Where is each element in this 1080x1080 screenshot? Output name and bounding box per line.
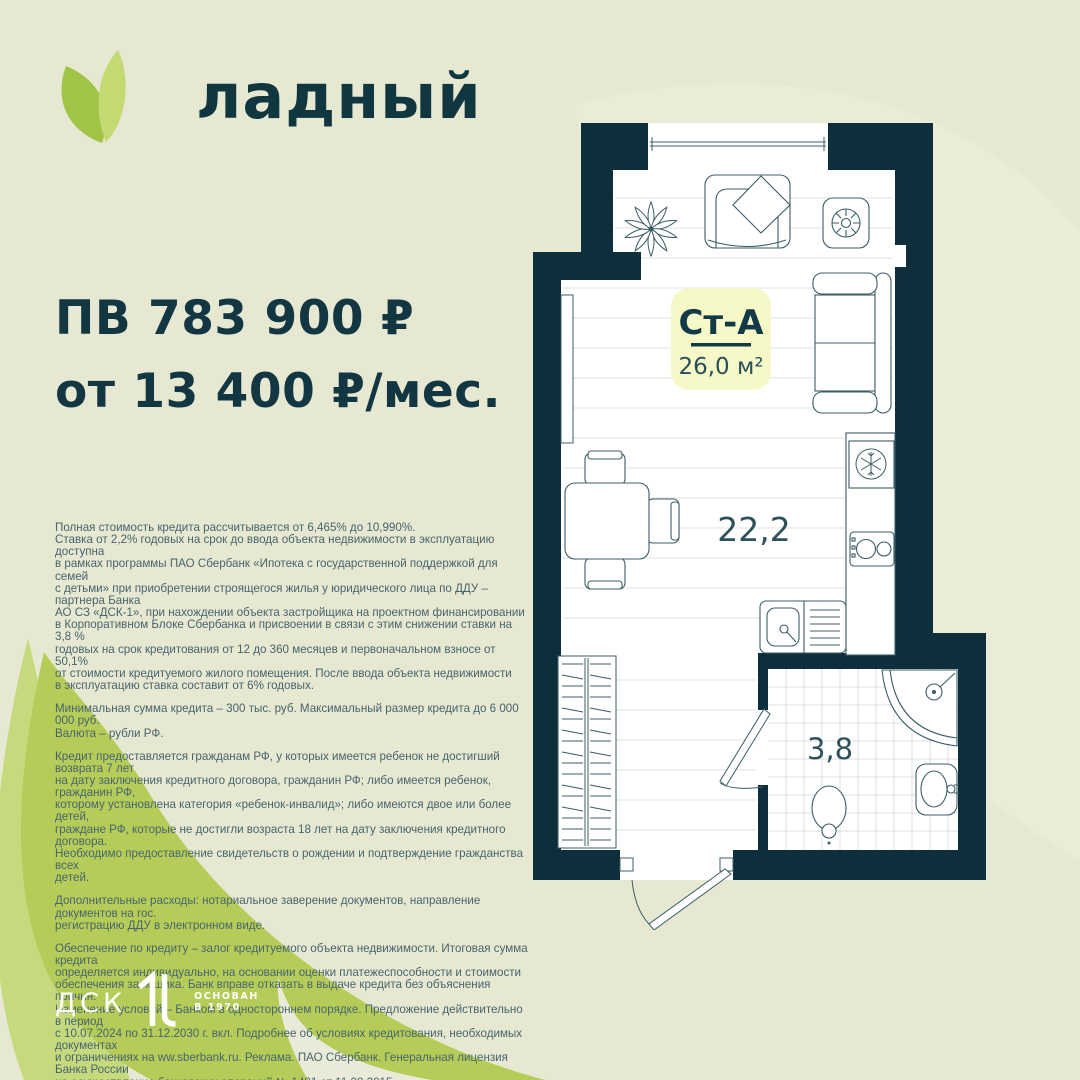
kitchen-sink: [760, 601, 846, 653]
floorplan: Ст-А 26,0 м² 22,2 3,8: [528, 112, 988, 930]
unit-badge: Ст-А 26,0 м²: [671, 288, 771, 390]
unit-code-label: Ст-А: [678, 303, 764, 343]
table: [565, 483, 649, 559]
sofa: [813, 273, 891, 413]
offer-monthly-payment: от 13 400 ₽/мес.: [55, 355, 501, 428]
wardrobe: [558, 656, 616, 848]
founded-label: ОСНОВАН В 1970: [194, 992, 259, 1013]
shelf: [561, 295, 573, 443]
chair: [588, 581, 622, 589]
legal-paragraph: Кредит предоставляется гражданам РФ, у к…: [55, 751, 529, 885]
fan-icon: [823, 198, 869, 248]
main-room-area-label: 22,2: [717, 510, 790, 549]
brand-logo: ладный: [52, 48, 482, 148]
developer-name: ДСК: [55, 990, 126, 1017]
developer-logo: ДСК ОСНОВАН В 1970: [55, 971, 259, 1029]
bathroom-area-label: 3,8: [807, 732, 853, 766]
chair: [671, 502, 679, 540]
dsk-one-icon: [134, 971, 182, 1029]
poster: ладный ПВ 783 900 ₽ от 13 400 ₽/мес. Пол…: [0, 0, 1080, 1080]
bathroom-sink: [916, 764, 959, 815]
unit-area-label: 26,0 м²: [678, 354, 763, 380]
brand-name: ладный: [196, 66, 482, 128]
legal-paragraph: Минимальная сумма кредита – 300 тыс. руб…: [55, 703, 529, 739]
offer-down-payment: ПВ 783 900 ₽: [55, 282, 501, 355]
stove: [850, 532, 894, 566]
legal-paragraph: Дополнительные расходы: нотариальное зав…: [55, 895, 529, 931]
brand-leaf-icon: [52, 48, 152, 148]
offer-block: ПВ 783 900 ₽ от 13 400 ₽/мес.: [55, 282, 501, 428]
wall-notch: [893, 245, 906, 267]
armchair: [705, 175, 790, 248]
chair: [588, 451, 622, 459]
legal-paragraph: Полная стоимость кредита рассчитывается …: [55, 522, 529, 692]
